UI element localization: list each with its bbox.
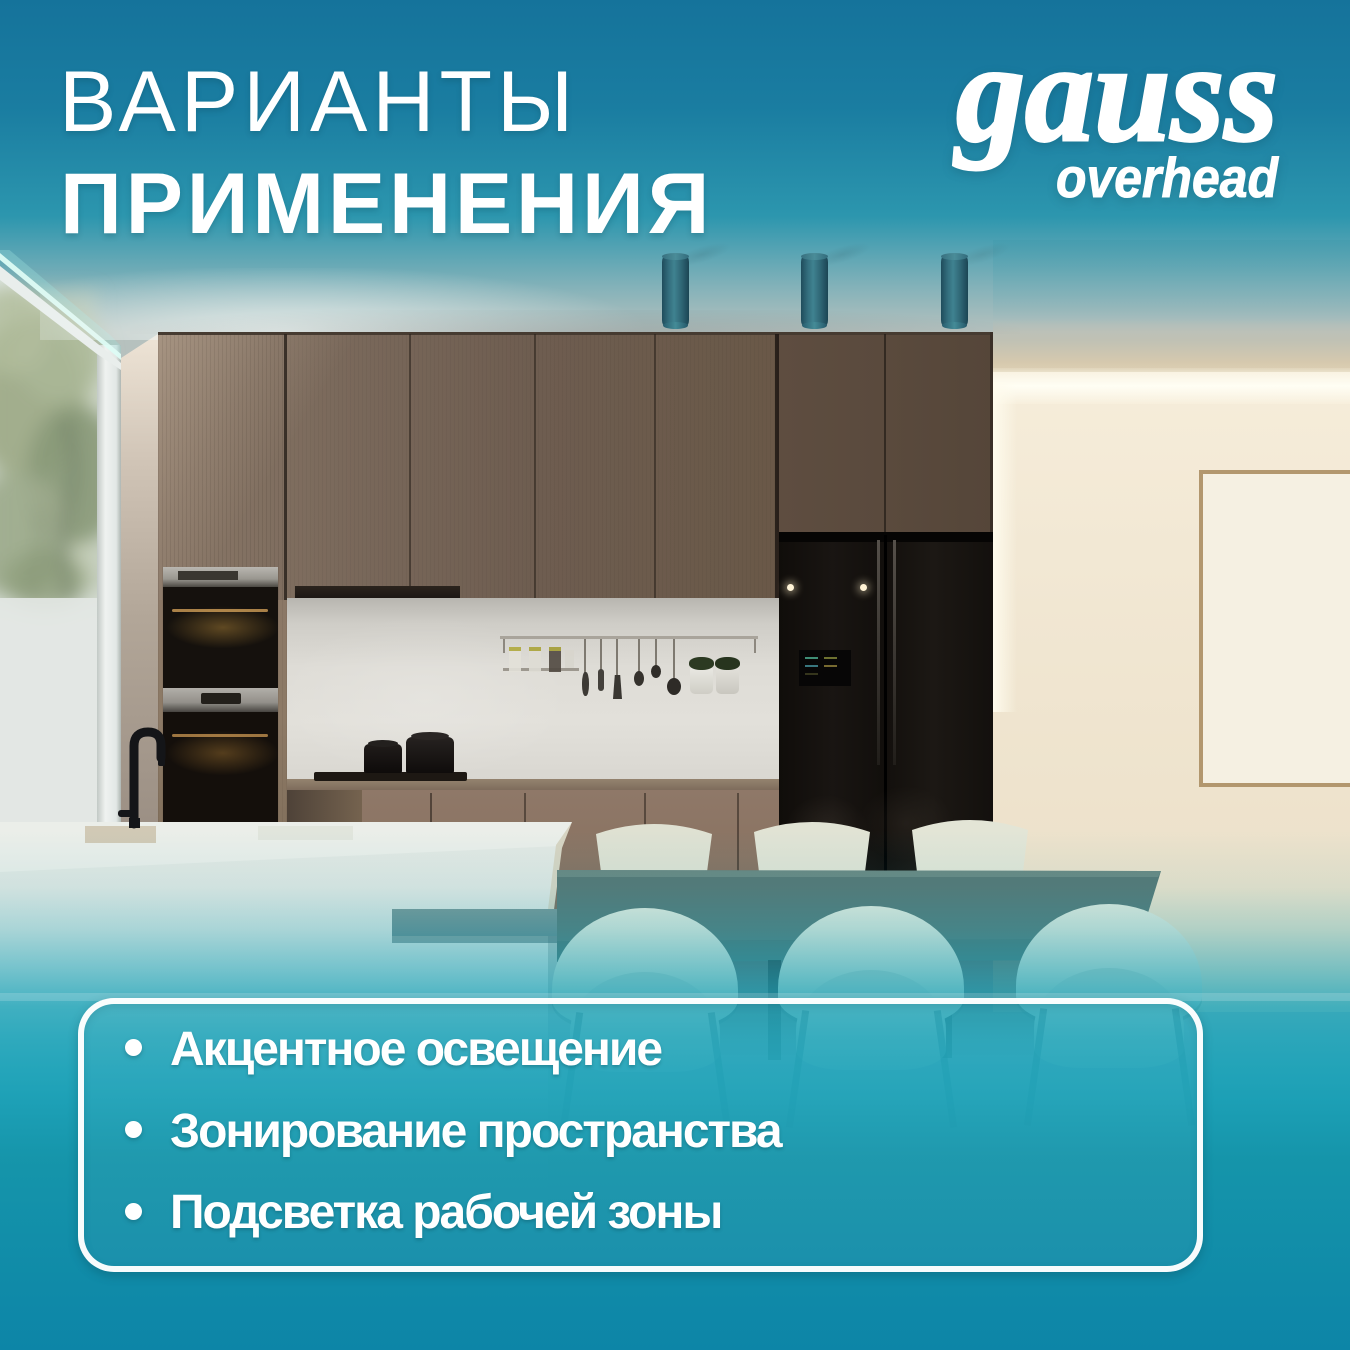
svg-text:overhead: overhead [1056,146,1280,209]
